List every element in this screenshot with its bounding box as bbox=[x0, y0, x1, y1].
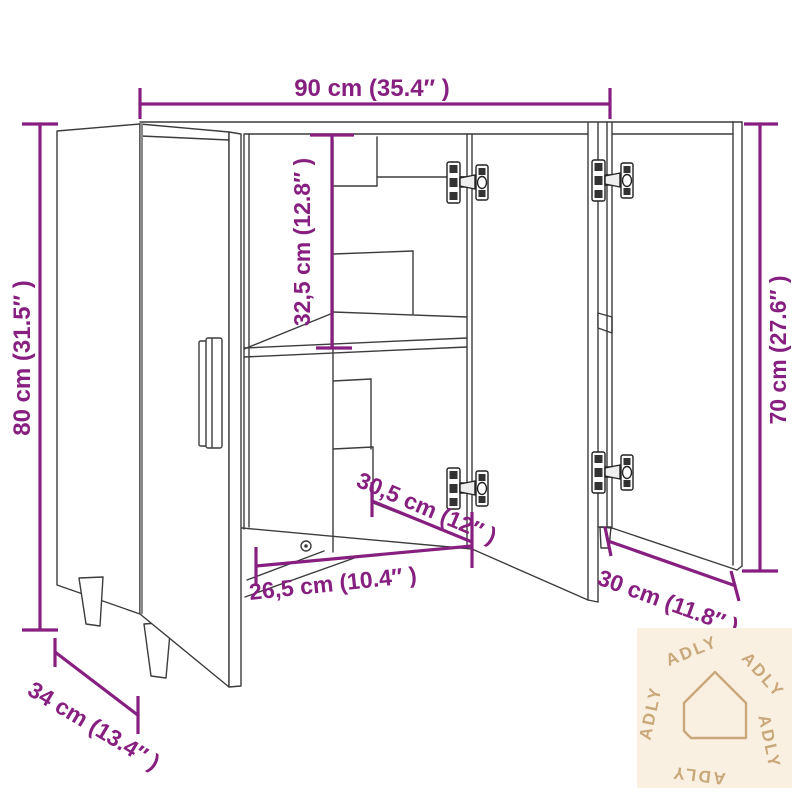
dim-overall-width-label: 90 cm (35.4″ ) bbox=[294, 75, 450, 102]
dim-overall-height-label: 80 cm (31.5″ ) bbox=[9, 280, 36, 436]
dim-compartment-width-label: 26,5 cm (10.4″ ) bbox=[248, 562, 418, 605]
dim-overall-depth: 34 cm (13.4″ ) bbox=[23, 638, 164, 775]
brand-watermark: ADLY ADLY ADLY ADLY ADLY bbox=[636, 628, 792, 788]
dim-upper-compartment-height: 32,5 cm (12.8″ ) bbox=[289, 135, 354, 348]
dim-upper-compartment-height-label: 32,5 cm (12.8″ ) bbox=[289, 158, 315, 326]
back-left-leg bbox=[79, 577, 103, 626]
dim-side-height: 70 cm (27.6″ ) bbox=[742, 124, 791, 571]
dim-right-door-width: 30 cm (11.8″ ) bbox=[594, 527, 742, 639]
middle-shelf bbox=[244, 312, 467, 357]
door-handle bbox=[199, 338, 222, 448]
bottom-front-edge bbox=[242, 528, 472, 549]
product-dimension-image: 90 cm (35.4″ ) 80 cm (31.5″ ) 32,5 cm (1… bbox=[0, 0, 800, 800]
left-door bbox=[140, 124, 241, 687]
sideboard-diagram: 90 cm (35.4″ ) 80 cm (31.5″ ) 32,5 cm (1… bbox=[0, 0, 800, 800]
dim-overall-height: 80 cm (31.5″ ) bbox=[9, 124, 58, 630]
dim-side-height-label: 70 cm (27.6″ ) bbox=[765, 275, 791, 424]
shelf-support-bracket bbox=[598, 313, 612, 333]
dim-overall-width: 90 cm (35.4″ ) bbox=[140, 75, 610, 119]
left-side-panel bbox=[57, 124, 140, 614]
dim-overall-depth-label: 34 cm (13.4″ ) bbox=[23, 676, 164, 775]
hinges bbox=[447, 160, 633, 509]
